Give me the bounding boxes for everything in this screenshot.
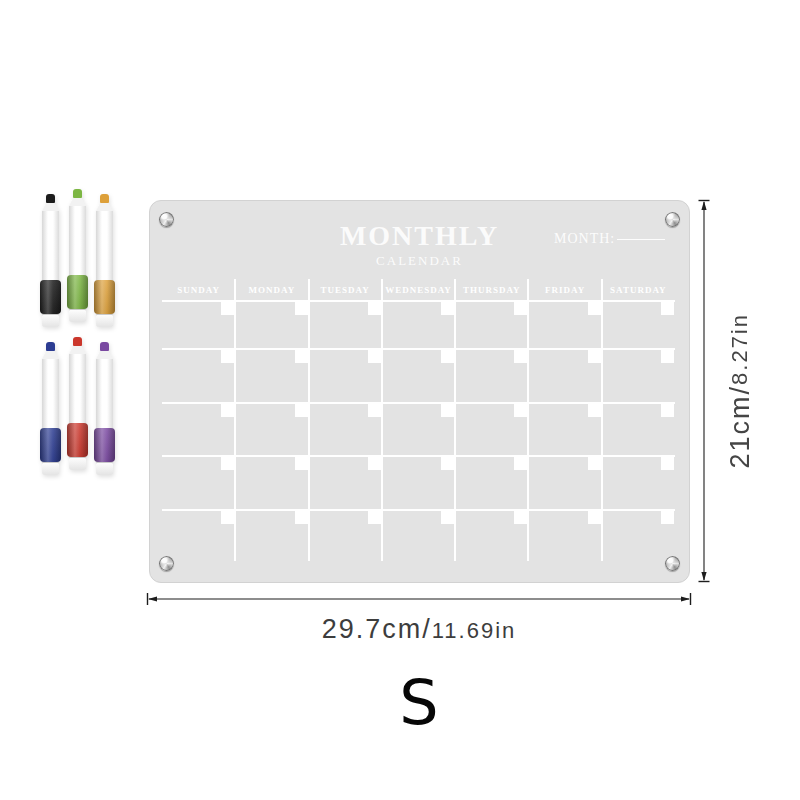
column-separator [381,279,383,561]
marker-grip [94,280,115,314]
marker-eraser-cap [42,314,59,327]
height-dimension-line [697,199,711,583]
marker-barrel [42,211,59,280]
date-box [661,350,674,363]
column-separator [454,279,456,561]
column-separator [234,279,236,561]
date-box [295,511,308,524]
date-box [588,350,601,363]
date-box [441,350,454,363]
marker-barrel [69,206,86,275]
calendar-board: MONTHLY CALENDAR MONTH: SUNDAYMONDAYTUES… [149,200,690,583]
date-box [514,350,527,363]
marker-grip [67,423,88,457]
marker-eraser-cap [96,462,113,475]
marker-barrel [69,354,86,423]
marker-grip [40,280,61,314]
date-box [368,350,381,363]
marker-cap-tip [73,337,82,346]
date-box [514,457,527,470]
marker-cap-tip [46,342,55,351]
width-imperial: 11.69in [432,618,517,643]
date-box [441,302,454,315]
date-box [295,302,308,315]
date-box [588,457,601,470]
marker-shoulder [42,351,59,359]
marker-barrel [96,359,113,428]
marker-set-bottom [40,342,115,475]
date-box [441,457,454,470]
date-box [221,511,234,524]
date-box [368,511,381,524]
marker-green [67,189,88,327]
column-separator [527,279,529,561]
date-box [368,457,381,470]
calendar-grid [162,201,675,582]
marker-shoulder [42,203,59,211]
marker-eraser-cap [69,457,86,470]
marker-red [67,337,88,475]
marker-shoulder [96,351,113,359]
marker-shoulder [69,198,86,206]
date-box [661,511,674,524]
column-separator [308,279,310,561]
date-box [661,302,674,315]
date-box [295,404,308,417]
date-box [221,302,234,315]
width-dimension-label: 29.7cm/11.69in [146,614,692,645]
date-box [368,404,381,417]
marker-orange [94,194,115,327]
product-image: MONTHLY CALENDAR MONTH: SUNDAYMONDAYTUES… [0,0,800,800]
column-separator [601,279,603,561]
marker-barrel [96,211,113,280]
date-box [368,302,381,315]
date-box [514,302,527,315]
date-box [441,404,454,417]
brand-logo: S [146,672,692,734]
marker-grip [40,428,61,462]
marker-black [40,194,61,327]
date-box [514,404,527,417]
marker-cap-tip [100,194,109,203]
width-metric: 29.7cm/ [322,614,432,644]
date-box [588,511,601,524]
marker-grip [94,428,115,462]
date-box [661,404,674,417]
marker-cap-tip [46,194,55,203]
marker-shoulder [69,346,86,354]
marker-set-top [40,194,115,327]
marker-blue [40,342,61,475]
date-box [514,511,527,524]
date-box [661,457,674,470]
marker-eraser-cap [96,314,113,327]
height-imperial: 8.27in [727,313,752,385]
date-box [441,511,454,524]
marker-eraser-cap [42,462,59,475]
marker-barrel [42,359,59,428]
date-box [588,404,601,417]
date-box [295,457,308,470]
marker-purple [94,342,115,475]
marker-grip [67,275,88,309]
width-dimension-line [146,591,692,607]
date-box [221,457,234,470]
date-box [221,350,234,363]
marker-cap-tip [73,189,82,198]
height-dimension-label: 21cm/8.27in [712,199,768,583]
marker-cap-tip [100,342,109,351]
date-box [221,404,234,417]
marker-eraser-cap [69,309,86,322]
height-metric: 21cm/ [725,385,755,469]
date-box [588,302,601,315]
date-box [295,350,308,363]
marker-shoulder [96,203,113,211]
